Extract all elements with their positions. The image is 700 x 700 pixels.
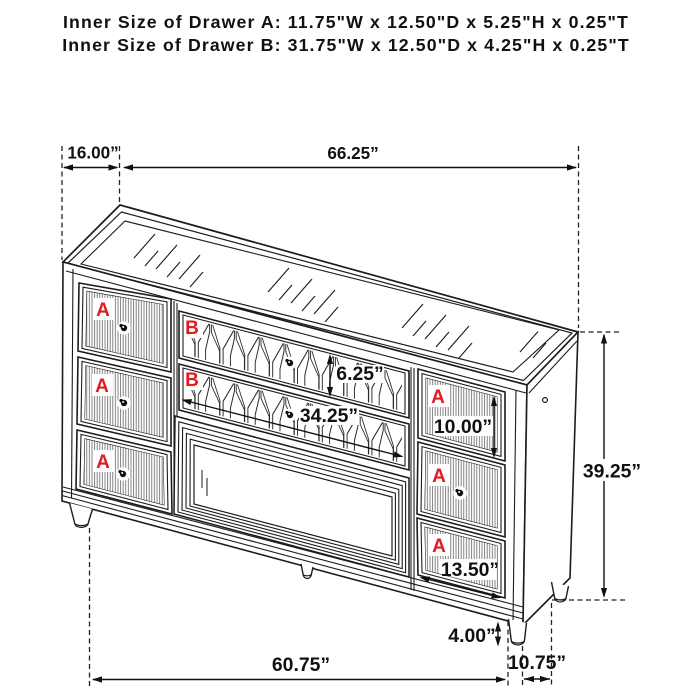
svg-text:13.50”: 13.50” <box>441 559 499 581</box>
svg-text:60.75”: 60.75” <box>272 654 330 676</box>
svg-text:10.75”: 10.75” <box>508 652 566 674</box>
svg-text:34.25”: 34.25” <box>300 405 358 427</box>
svg-text:A: A <box>96 300 110 321</box>
svg-text:Inner Size of Drawer A: 11.75": Inner Size of Drawer A: 11.75"W x 12.50"… <box>63 12 629 32</box>
svg-text:10.00”: 10.00” <box>434 416 492 438</box>
svg-text:A: A <box>432 536 446 557</box>
svg-text:39.25”: 39.25” <box>583 461 641 483</box>
svg-text:A: A <box>95 376 109 397</box>
svg-text:Inner Size of Drawer B: 31.75": Inner Size of Drawer B: 31.75"W x 12.50"… <box>62 35 630 55</box>
svg-text:A: A <box>431 387 445 408</box>
svg-text:16.00”: 16.00” <box>67 144 118 163</box>
svg-text:B: B <box>185 318 199 339</box>
svg-text:66.25”: 66.25” <box>327 144 378 163</box>
svg-text:4.00”: 4.00” <box>448 625 495 647</box>
svg-text:A: A <box>432 466 446 487</box>
svg-text:A: A <box>96 452 110 473</box>
svg-text:B: B <box>185 370 199 391</box>
svg-text:6.25”: 6.25” <box>336 363 383 385</box>
